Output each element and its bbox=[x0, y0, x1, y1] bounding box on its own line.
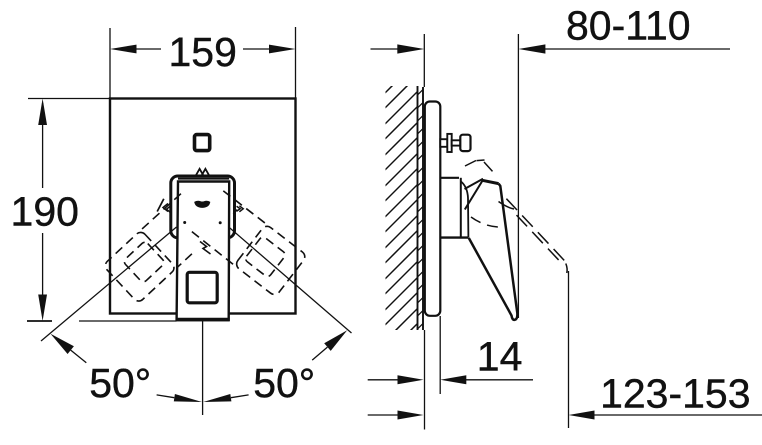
svg-text:14: 14 bbox=[477, 334, 523, 380]
svg-text:50°: 50° bbox=[89, 360, 151, 406]
svg-text:50°: 50° bbox=[253, 360, 315, 406]
svg-text:80-110: 80-110 bbox=[566, 3, 691, 49]
svg-text:159: 159 bbox=[168, 29, 236, 75]
svg-text:123-153: 123-153 bbox=[600, 371, 750, 417]
svg-text:190: 190 bbox=[11, 189, 79, 235]
